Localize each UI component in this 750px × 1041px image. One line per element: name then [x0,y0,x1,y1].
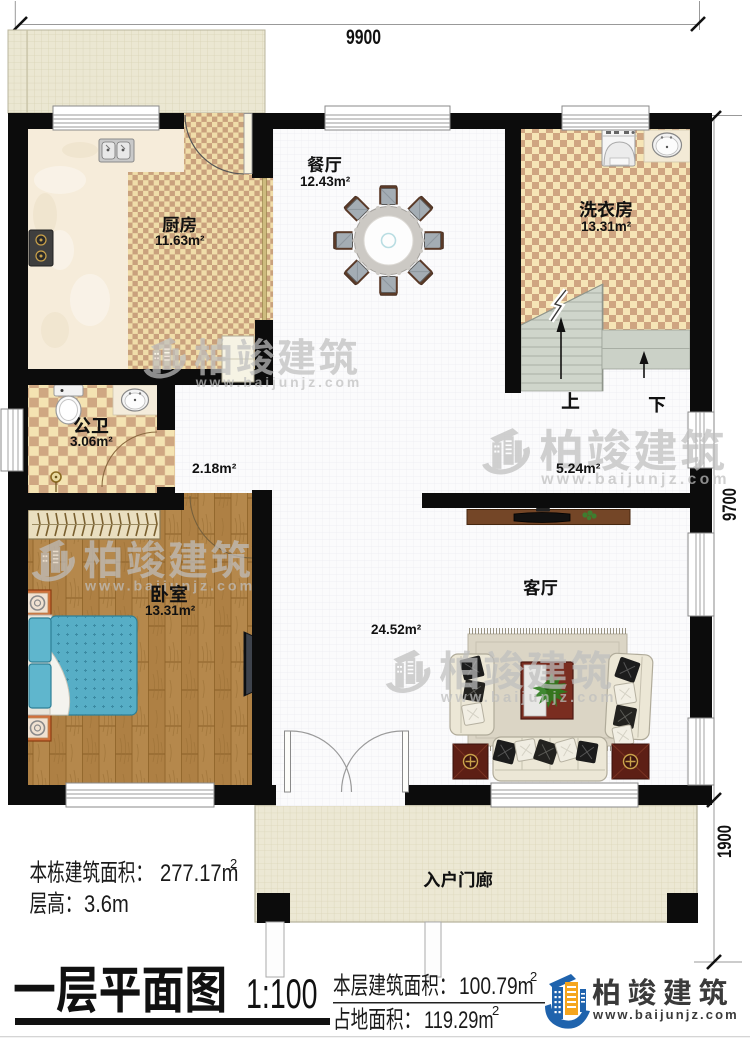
svg-text:9900: 9900 [346,25,381,49]
svg-text:2: 2 [230,856,237,871]
svg-text:1:100: 1:100 [246,969,317,1017]
svg-text:24.52m²: 24.52m² [371,622,422,637]
svg-text:www.baijunjz.com: www.baijunjz.com [592,1007,739,1022]
svg-text:100.79m: 100.79m [459,972,534,1000]
svg-text:13.31m²: 13.31m² [145,603,196,618]
svg-text:2: 2 [530,969,537,984]
svg-text:11.63m²: 11.63m² [155,233,205,248]
svg-text:9700: 9700 [719,488,740,521]
svg-text:119.29m: 119.29m [424,1007,494,1034]
svg-text:1900: 1900 [714,825,735,858]
svg-text:2: 2 [492,1003,499,1018]
svg-text:12.43m²: 12.43m² [300,174,351,189]
svg-text:5.24m²: 5.24m² [556,460,601,476]
svg-text:3.06m²: 3.06m² [70,434,113,449]
svg-text:2.18m²: 2.18m² [192,460,237,476]
svg-text:13.31m²: 13.31m² [581,219,632,234]
svg-text:3.6m: 3.6m [84,890,129,917]
svg-text:277.17m: 277.17m [160,859,238,886]
